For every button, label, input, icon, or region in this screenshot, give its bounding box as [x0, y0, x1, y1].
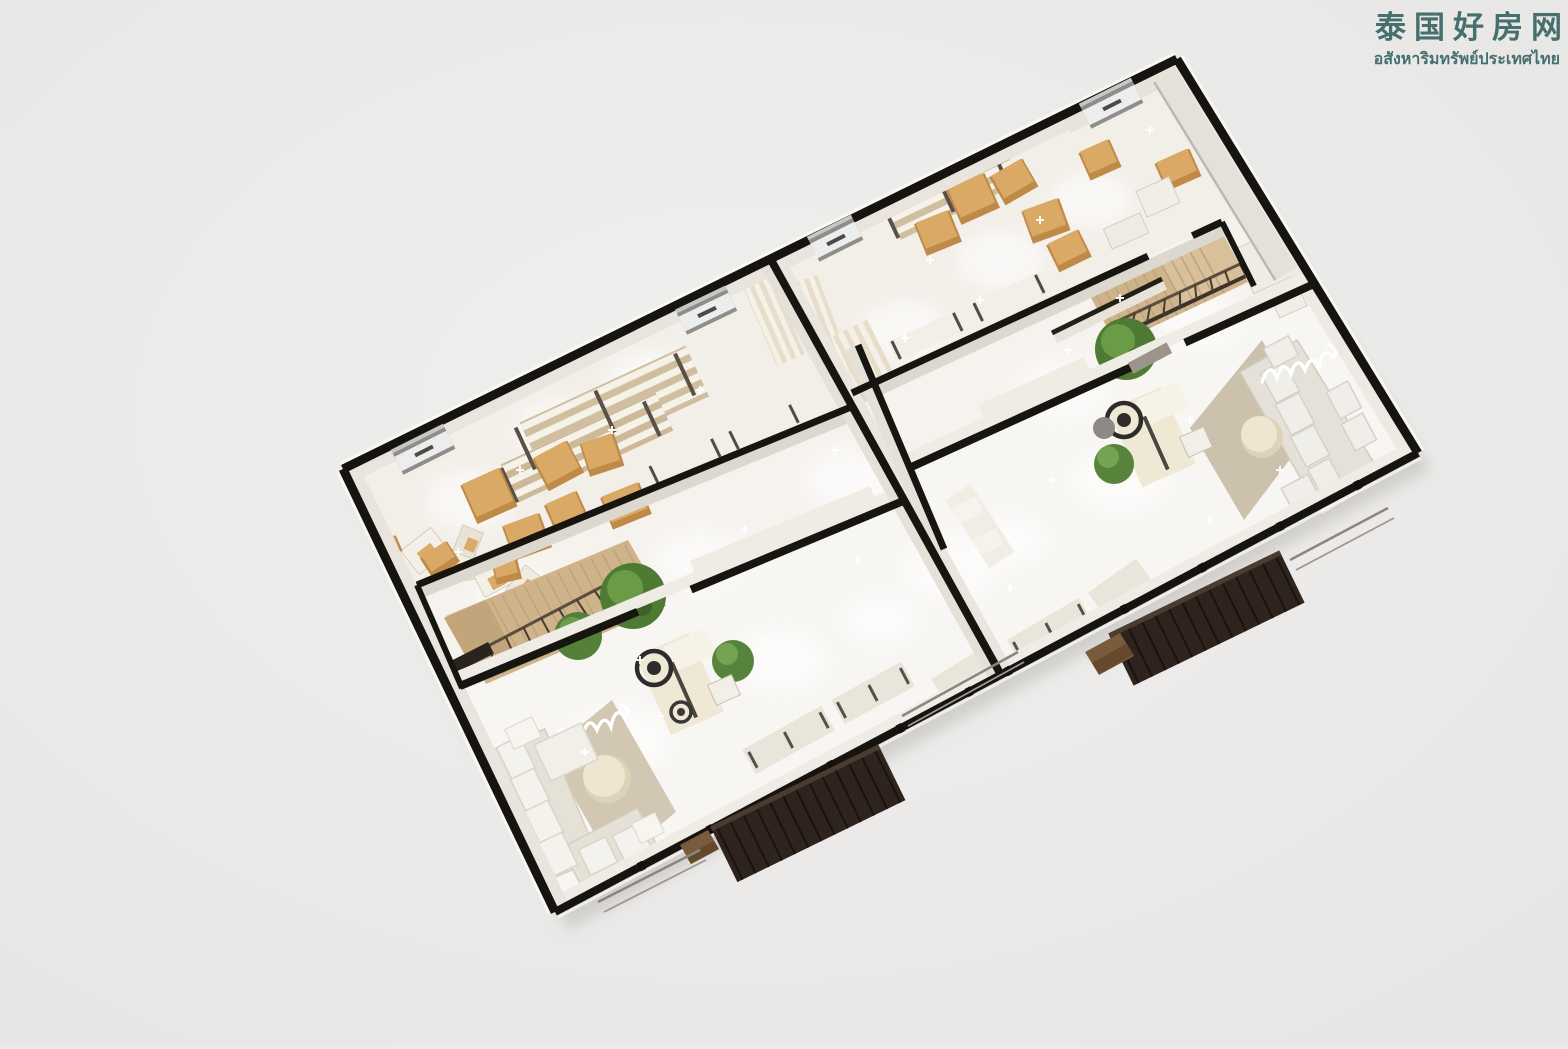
svg-text:泰国好房网: 泰国好房网	[1375, 10, 1568, 45]
svg-text:อสังหาริมทรัพย์ประเทศไทย: อสังหาริมทรัพย์ประเทศไทย	[1374, 49, 1560, 68]
